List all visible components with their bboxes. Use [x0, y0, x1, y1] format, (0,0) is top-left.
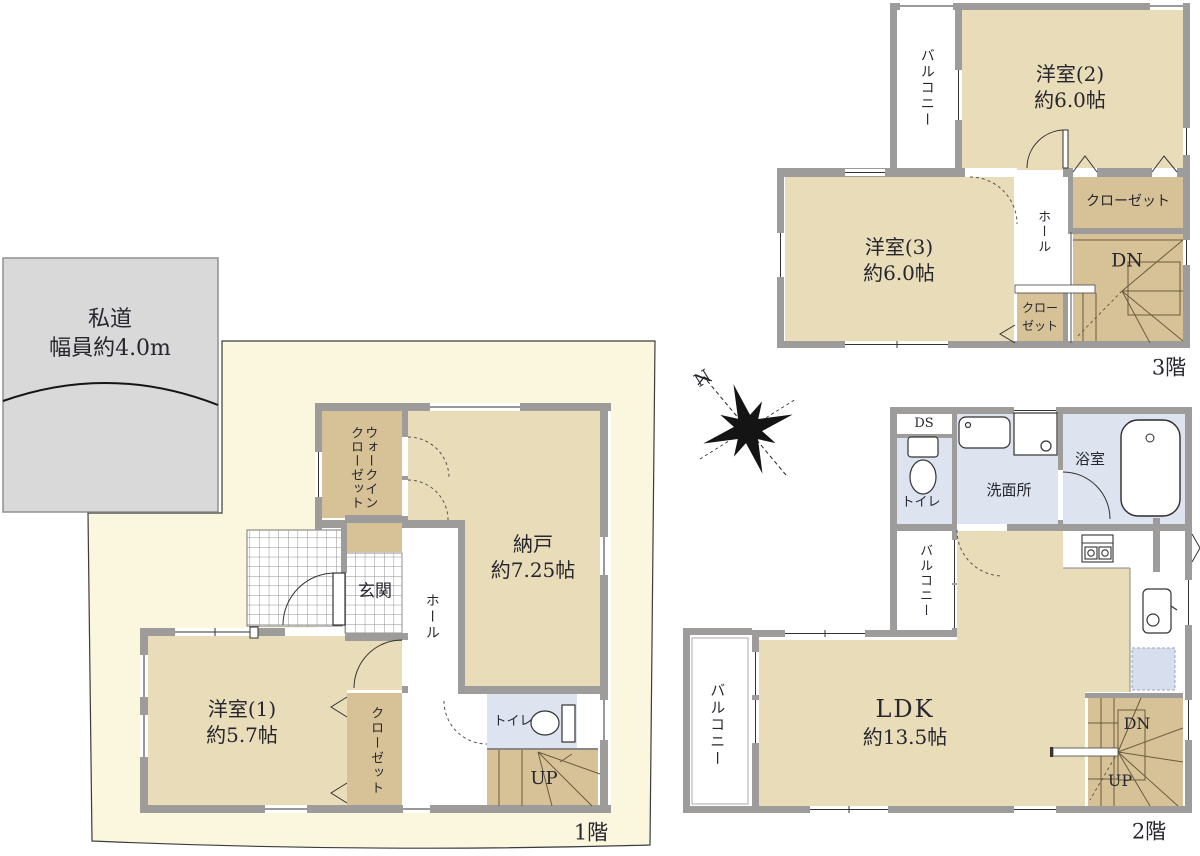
kitchen-door-mark [1192, 534, 1200, 562]
front-door-leaf [333, 573, 345, 625]
balcony-large-2f [683, 628, 752, 813]
room-closet3f [1073, 177, 1183, 228]
stairs-2f-rail-gap [1053, 748, 1118, 756]
refrigerator-space [1132, 648, 1175, 690]
washing-machine-icon [1014, 413, 1057, 455]
floorplan-drawing [0, 0, 1200, 856]
room-genkan [345, 553, 402, 633]
room-closet3f-small [1017, 293, 1063, 343]
room-bedroom2 [960, 8, 1185, 170]
floorplan-page: 私道 幅員約4.0m N ウォークイン クローゼット 納戸 約7.25帖 玄関 … [0, 0, 1200, 856]
stairs-up-1f [487, 750, 598, 806]
entrance-porch [247, 530, 342, 626]
vanity-sink-icon [959, 417, 1010, 448]
bathtub-icon [1121, 420, 1180, 516]
private-road-area [3, 258, 218, 512]
room-bedroom3 [785, 177, 1014, 343]
stairs-3f-rail-gap [1015, 285, 1095, 293]
compass-icon [689, 370, 807, 488]
stove-icon [1082, 535, 1113, 562]
floor3-plan [777, 3, 1190, 348]
room-walkin-closet [322, 411, 402, 518]
room-closet1f [347, 693, 402, 806]
